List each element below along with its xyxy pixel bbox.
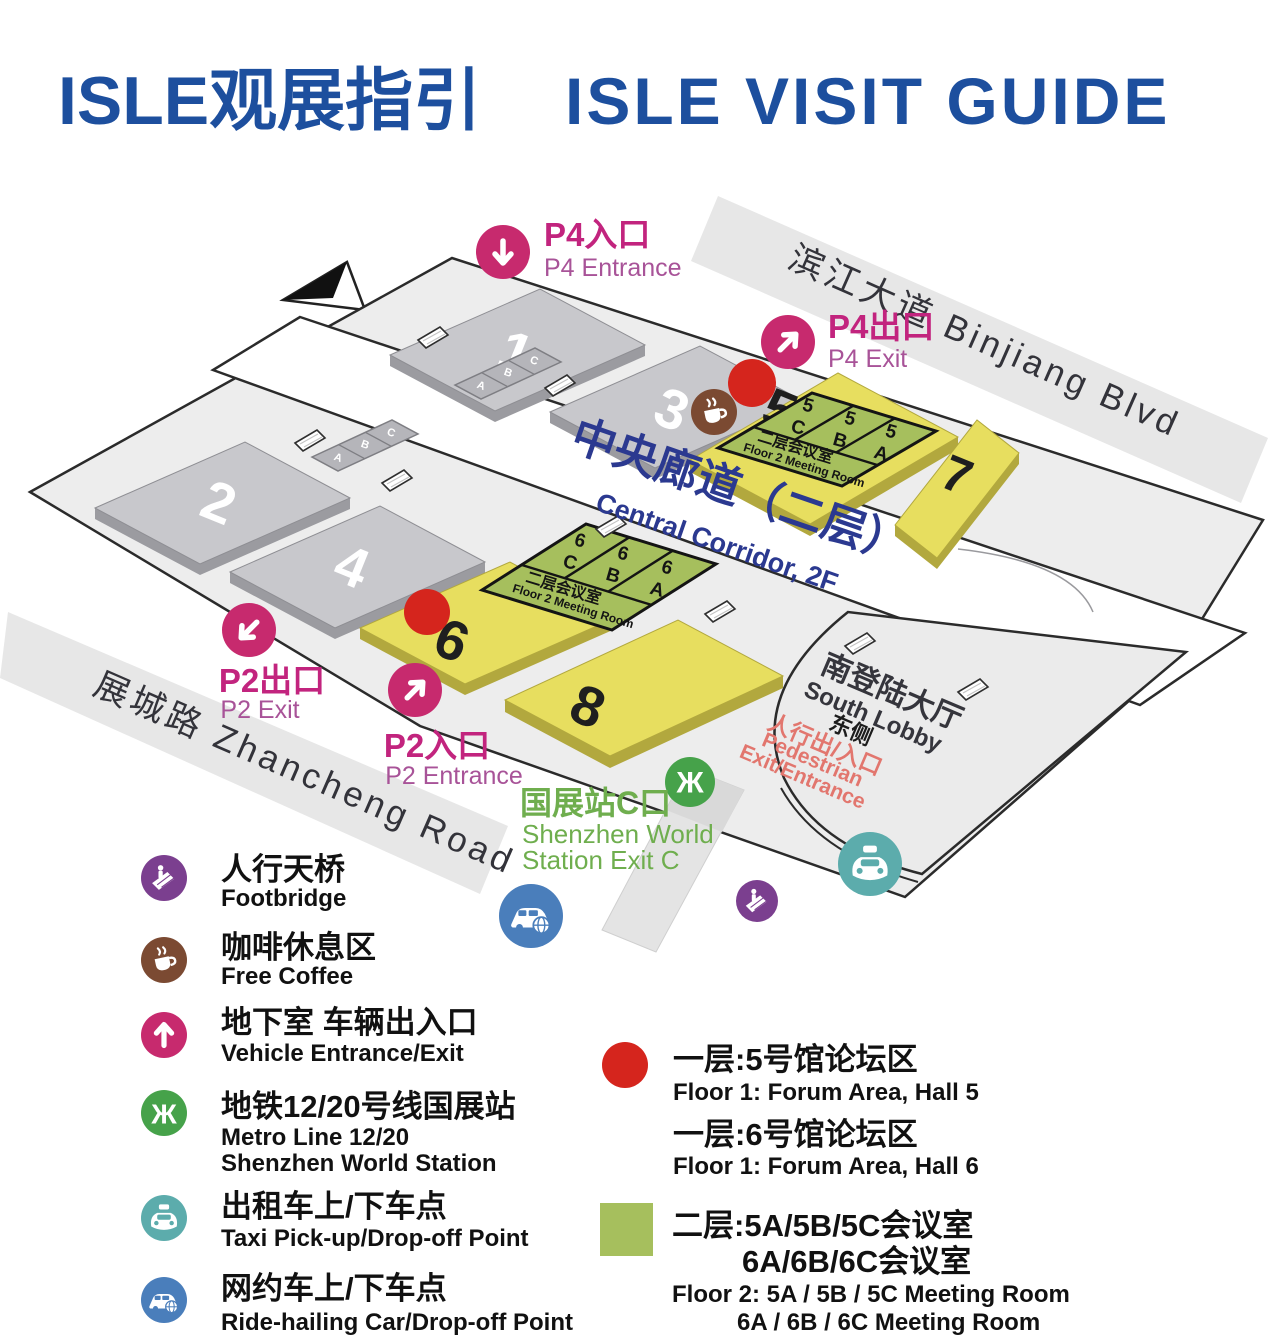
page-title-cn: ISLE观展指引 — [58, 63, 481, 139]
legend-meeting-cn1: 二层:5A/5B/5C会议室 — [672, 1208, 973, 1243]
legend-taxi-cn: 出租车上/下车点 — [221, 1189, 447, 1224]
p2-exit-label-cn: P2出口 — [219, 662, 325, 699]
legend-footbridge: 人行天桥 Footbridge — [141, 852, 346, 912]
forum-hall6-dot — [404, 589, 450, 635]
legend-vehicle-en: Vehicle Entrance/Exit — [221, 1040, 464, 1067]
p2-entrance-label-cn: P2入口 — [384, 727, 490, 764]
metro-logo-icon: Ж — [150, 1099, 177, 1130]
legend-meeting-en2: 6A / 6B / 6C Meeting Room — [737, 1309, 1040, 1336]
p2-exit-label-en: P2 Exit — [220, 696, 299, 724]
p4-entrance-marker: P4入口 P4 Entrance — [476, 216, 682, 282]
isle-visit-guide-poster: ISLE观展指引 ISLE VISIT GUIDE 滨江大道 Binjiang … — [0, 0, 1280, 1338]
legend-metro-cn: 地铁12/20号线国展站 — [221, 1089, 516, 1124]
station-exit-label-cn: 国展站C口 — [520, 785, 671, 821]
p4-exit-label-en: P4 Exit — [828, 345, 907, 373]
legend-forum5-en: Floor 1: Forum Area, Hall 5 — [673, 1079, 979, 1106]
legend-forum-dot — [602, 1042, 648, 1088]
station-exit-label-en2: Station Exit C — [522, 845, 680, 875]
venue-map: ISLE观展指引 ISLE VISIT GUIDE 滨江大道 Binjiang … — [0, 0, 1280, 1338]
taxi-map-icon — [838, 832, 902, 896]
legend-metro-en2: Shenzhen World Station — [221, 1150, 497, 1177]
legend-coffee-en: Free Coffee — [221, 963, 353, 990]
p4-exit-marker: P4出口 P4 Exit — [761, 308, 934, 373]
legend-free-coffee: 咖啡休息区 Free Coffee — [141, 930, 376, 990]
metro-logo-icon: Ж — [675, 767, 704, 800]
legend-metro-en1: Metro Line 12/20 — [221, 1124, 409, 1151]
p4-entrance-label-en: P4 Entrance — [544, 254, 682, 282]
legend-metro: Ж 地铁12/20号线国展站 Metro Line 12/20 Shenzhen… — [141, 1089, 516, 1177]
free-coffee-map-icon — [691, 389, 737, 435]
legend-meeting-en1: Floor 2: 5A / 5B / 5C Meeting Room — [672, 1281, 1070, 1308]
legend-meeting-cn2: 6A/6B/6C会议室 — [742, 1244, 971, 1279]
ridehailing-map-icon — [499, 884, 563, 948]
legend-forum6-en: Floor 1: Forum Area, Hall 6 — [673, 1153, 979, 1180]
legend-taxi-en: Taxi Pick-up/Drop-off Point — [221, 1225, 529, 1252]
legend-meeting-square — [600, 1203, 653, 1256]
legend-footbridge-cn: 人行天桥 — [221, 852, 345, 887]
legend-vehicle-entrance: 地下室 车辆出入口 Vehicle Entrance/Exit — [141, 1005, 478, 1067]
page-title-en: ISLE VISIT GUIDE — [565, 64, 1170, 138]
p4-exit-label-cn: P4出口 — [828, 308, 934, 345]
legend-footbridge-en: Footbridge — [221, 885, 346, 912]
p2-entrance-label-en: P2 Entrance — [385, 762, 523, 790]
legend-ridehailing-cn: 网约车上/下车点 — [221, 1271, 447, 1306]
legend-ridehailing-en: Ride-hailing Car/Drop-off Point — [221, 1309, 573, 1336]
legend-coffee-cn: 咖啡休息区 — [221, 930, 376, 965]
footbridge-map-icon — [736, 880, 778, 922]
legend-forum6-cn: 一层:6号馆论坛区 — [673, 1117, 918, 1152]
legend-vehicle-cn: 地下室 车辆出入口 — [221, 1005, 478, 1040]
legend-right: 一层:5号馆论坛区 Floor 1: Forum Area, Hall 5 一层… — [600, 1042, 1070, 1336]
legend-taxi: 出租车上/下车点 Taxi Pick-up/Drop-off Point — [141, 1189, 529, 1252]
legend-ridehailing: 网约车上/下车点 Ride-hailing Car/Drop-off Point — [141, 1271, 573, 1336]
legend-forum5-cn: 一层:5号馆论坛区 — [673, 1042, 918, 1077]
forum-hall5-dot — [728, 359, 776, 407]
p4-entrance-label-cn: P4入口 — [544, 216, 650, 253]
